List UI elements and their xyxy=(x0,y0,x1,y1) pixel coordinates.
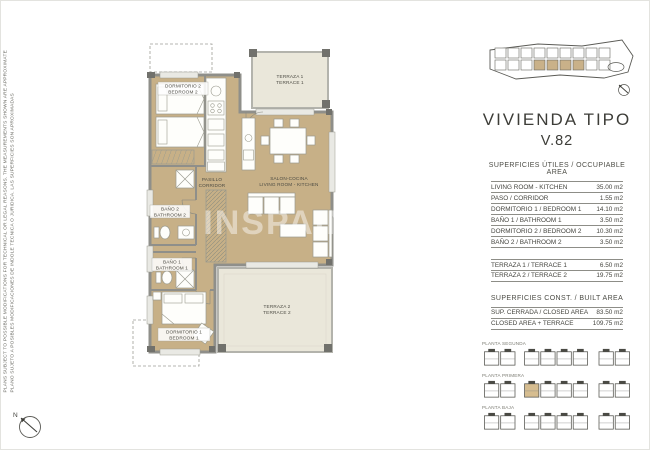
wardrobe-icon xyxy=(152,150,194,164)
area-label: PASO / CORRIDOR xyxy=(491,192,593,203)
area-value: 1.55 m2 xyxy=(593,192,623,203)
table-row: DORMITORIO 2 / BEDROOM 210.30 m2 xyxy=(491,225,623,236)
plan-subtitle: V.82 xyxy=(478,133,636,149)
area-value: 6.50 m2 xyxy=(589,259,623,270)
shower-icon xyxy=(176,270,194,288)
kitchen-counter-icon xyxy=(206,78,226,172)
info-panel: VIVIENDA TIPO V.82 SUPERFICIES ÚTILES / … xyxy=(478,34,636,432)
area-label: CLOSED AREA + TERRACE xyxy=(491,318,592,329)
nightstand-icon xyxy=(153,292,161,300)
floor-plan: DORMITORIO 2 BEDROOM 2 TERRAZA 1 TERRACE… xyxy=(128,34,390,378)
table-row: TERRAZA 1 / TERRACE 16.50 m2 xyxy=(491,259,623,270)
terrace1-label-en: TERRACE 1 xyxy=(276,80,304,85)
plan-title: VIVIENDA TIPO xyxy=(478,110,636,130)
terrace2-label-es: TERRAZA 2 xyxy=(264,304,291,309)
bath2-label-es: BAÑO 2 xyxy=(161,206,179,212)
bedroom1-label-en: BEDROOM 1 xyxy=(169,336,199,341)
area-value: 10.30 m2 xyxy=(593,225,623,236)
disclaimer-text: PLANS SUBJECT TO POSSIBLE MODIFICATIONS … xyxy=(3,59,18,393)
table-row: PASO / CORRIDOR1.55 m2 xyxy=(491,192,623,203)
floor-row-planta-segunda xyxy=(482,347,632,368)
disclaimer-line-en: PLANS SUBJECT TO POSSIBLE MODIFICATIONS … xyxy=(3,59,10,393)
floor-row-planta-baja xyxy=(482,411,632,432)
area-value: 83.50 m2 xyxy=(592,307,623,318)
bedroom2-label-en: BEDROOM 2 xyxy=(168,90,198,95)
bath1-label-es: BAÑO 1 xyxy=(163,259,181,265)
bath2-label-en: BATHROOM 2 xyxy=(154,213,186,218)
area-label: DORMITORIO 1 / BEDROOM 1 xyxy=(491,203,593,214)
terrace1-label-es: TERRAZA 1 xyxy=(277,74,304,79)
living-label-es: SALON-COCINA xyxy=(270,176,308,181)
area-value: 3.50 m2 xyxy=(593,214,623,225)
corridor-label-en: CORRIDOR xyxy=(199,183,226,188)
kitchen-island-icon xyxy=(242,118,255,170)
area-value: 14.10 m2 xyxy=(593,203,623,214)
single-bed-icon xyxy=(156,117,204,147)
table-row: CLOSED AREA + TERRACE109.75 m2 xyxy=(491,318,623,329)
disclaimer-line-es: PLANO SUJETO A POSIBLES MODIFICACIONES D… xyxy=(10,59,17,393)
terrace-area-table: TERRAZA 1 / TERRACE 16.50 m2 TERRAZA 2 /… xyxy=(491,259,623,282)
toilet-icon xyxy=(156,271,172,284)
floor-row-planta-primera xyxy=(482,379,632,400)
area-label: TERRAZA 2 / TERRACE 2 xyxy=(491,270,589,281)
area-label: DORMITORIO 2 / BEDROOM 2 xyxy=(491,225,593,236)
area-label: BAÑO 2 / BATHROOM 2 xyxy=(491,236,593,247)
area-label: BAÑO 1 / BATHROOM 1 xyxy=(491,214,593,225)
floor-label: PLANTA SEGUNDA xyxy=(482,341,636,346)
living-label-en: LIVING ROOM - KITCHEN xyxy=(259,182,318,187)
bedroom2-label-es: DORMITORIO 2 xyxy=(165,84,201,89)
area-value: 109.75 m2 xyxy=(592,318,623,329)
table-row: BAÑO 2 / BATHROOM 23.50 m2 xyxy=(491,236,623,247)
north-arrow-icon: N xyxy=(11,408,47,444)
table-row: DORMITORIO 1 / BEDROOM 114.10 m2 xyxy=(491,203,623,214)
watermark: INSPAIN xyxy=(203,204,352,242)
bath1-label-en: BATHROOM 1 xyxy=(156,266,188,271)
double-bed-icon xyxy=(162,292,206,324)
terrace2-label-en: TERRACE 2 xyxy=(263,310,291,315)
area-value: 35.00 m2 xyxy=(593,182,623,193)
table-row: TERRAZA 2 / TERRACE 219.75 m2 xyxy=(491,270,623,281)
shower-icon xyxy=(176,170,194,188)
useful-area-table: LIVING ROOM - KITCHEN35.00 m2 PASO / COR… xyxy=(491,181,623,248)
built-area-header: SUPERFICIES CONST. / BUILT AREA xyxy=(478,295,636,302)
bedroom1-label-es: DORMITORIO 1 xyxy=(166,330,202,335)
floor-key-block: PLANTA SEGUNDA PLANTA PRIMERA PLANTA BAJ… xyxy=(482,341,636,432)
site-plan-thumbnail xyxy=(486,34,636,100)
north-label: N xyxy=(13,412,18,419)
site-compass-icon xyxy=(619,85,630,96)
roof-overhang-top xyxy=(150,44,212,72)
toilet-icon xyxy=(154,226,170,239)
built-area-table: SUP. CERRADA / CLOSED AREA83.50 m2 CLOSE… xyxy=(491,307,623,330)
area-label: SUP. CERRADA / CLOSED AREA xyxy=(491,307,592,318)
table-row: BAÑO 1 / BATHROOM 13.50 m2 xyxy=(491,214,623,225)
area-label: TERRAZA 1 / TERRACE 1 xyxy=(491,259,589,270)
table-row: SUP. CERRADA / CLOSED AREA83.50 m2 xyxy=(491,307,623,318)
table-row: LIVING ROOM - KITCHEN35.00 m2 xyxy=(491,182,623,193)
area-label: LIVING ROOM - KITCHEN xyxy=(491,182,593,193)
floor-label: PLANTA BAJA xyxy=(482,405,636,410)
corridor-label-es: PASILLO xyxy=(202,177,222,182)
sink-icon xyxy=(178,226,194,239)
useful-area-header: SUPERFICIES ÚTILES / OCCUPIABLE AREA xyxy=(478,162,636,176)
floor-label: PLANTA PRIMERA xyxy=(482,373,636,378)
area-value: 19.75 m2 xyxy=(589,270,623,281)
area-value: 3.50 m2 xyxy=(593,236,623,247)
